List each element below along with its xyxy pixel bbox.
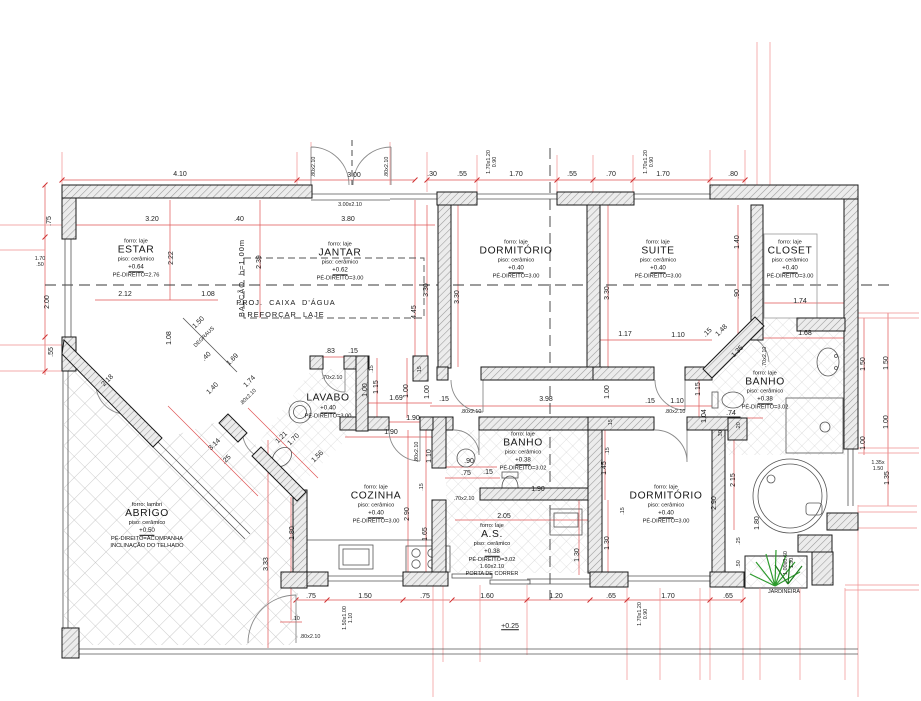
floor-plan-canvas (0, 0, 921, 701)
balcony-door-left (311, 147, 349, 185)
entry-steps (183, 318, 237, 372)
proj-caixa-dagua-box (244, 258, 424, 318)
floor-plan: forro: lajeESTARpiso: cerâmico+0.64PÉ-DI… (0, 0, 921, 701)
balcony-door-right (353, 147, 391, 185)
kitchen-sink (339, 545, 373, 569)
spa-tub (753, 459, 827, 533)
closet-shelf (764, 234, 817, 318)
floor-hatch-layer (64, 318, 845, 645)
